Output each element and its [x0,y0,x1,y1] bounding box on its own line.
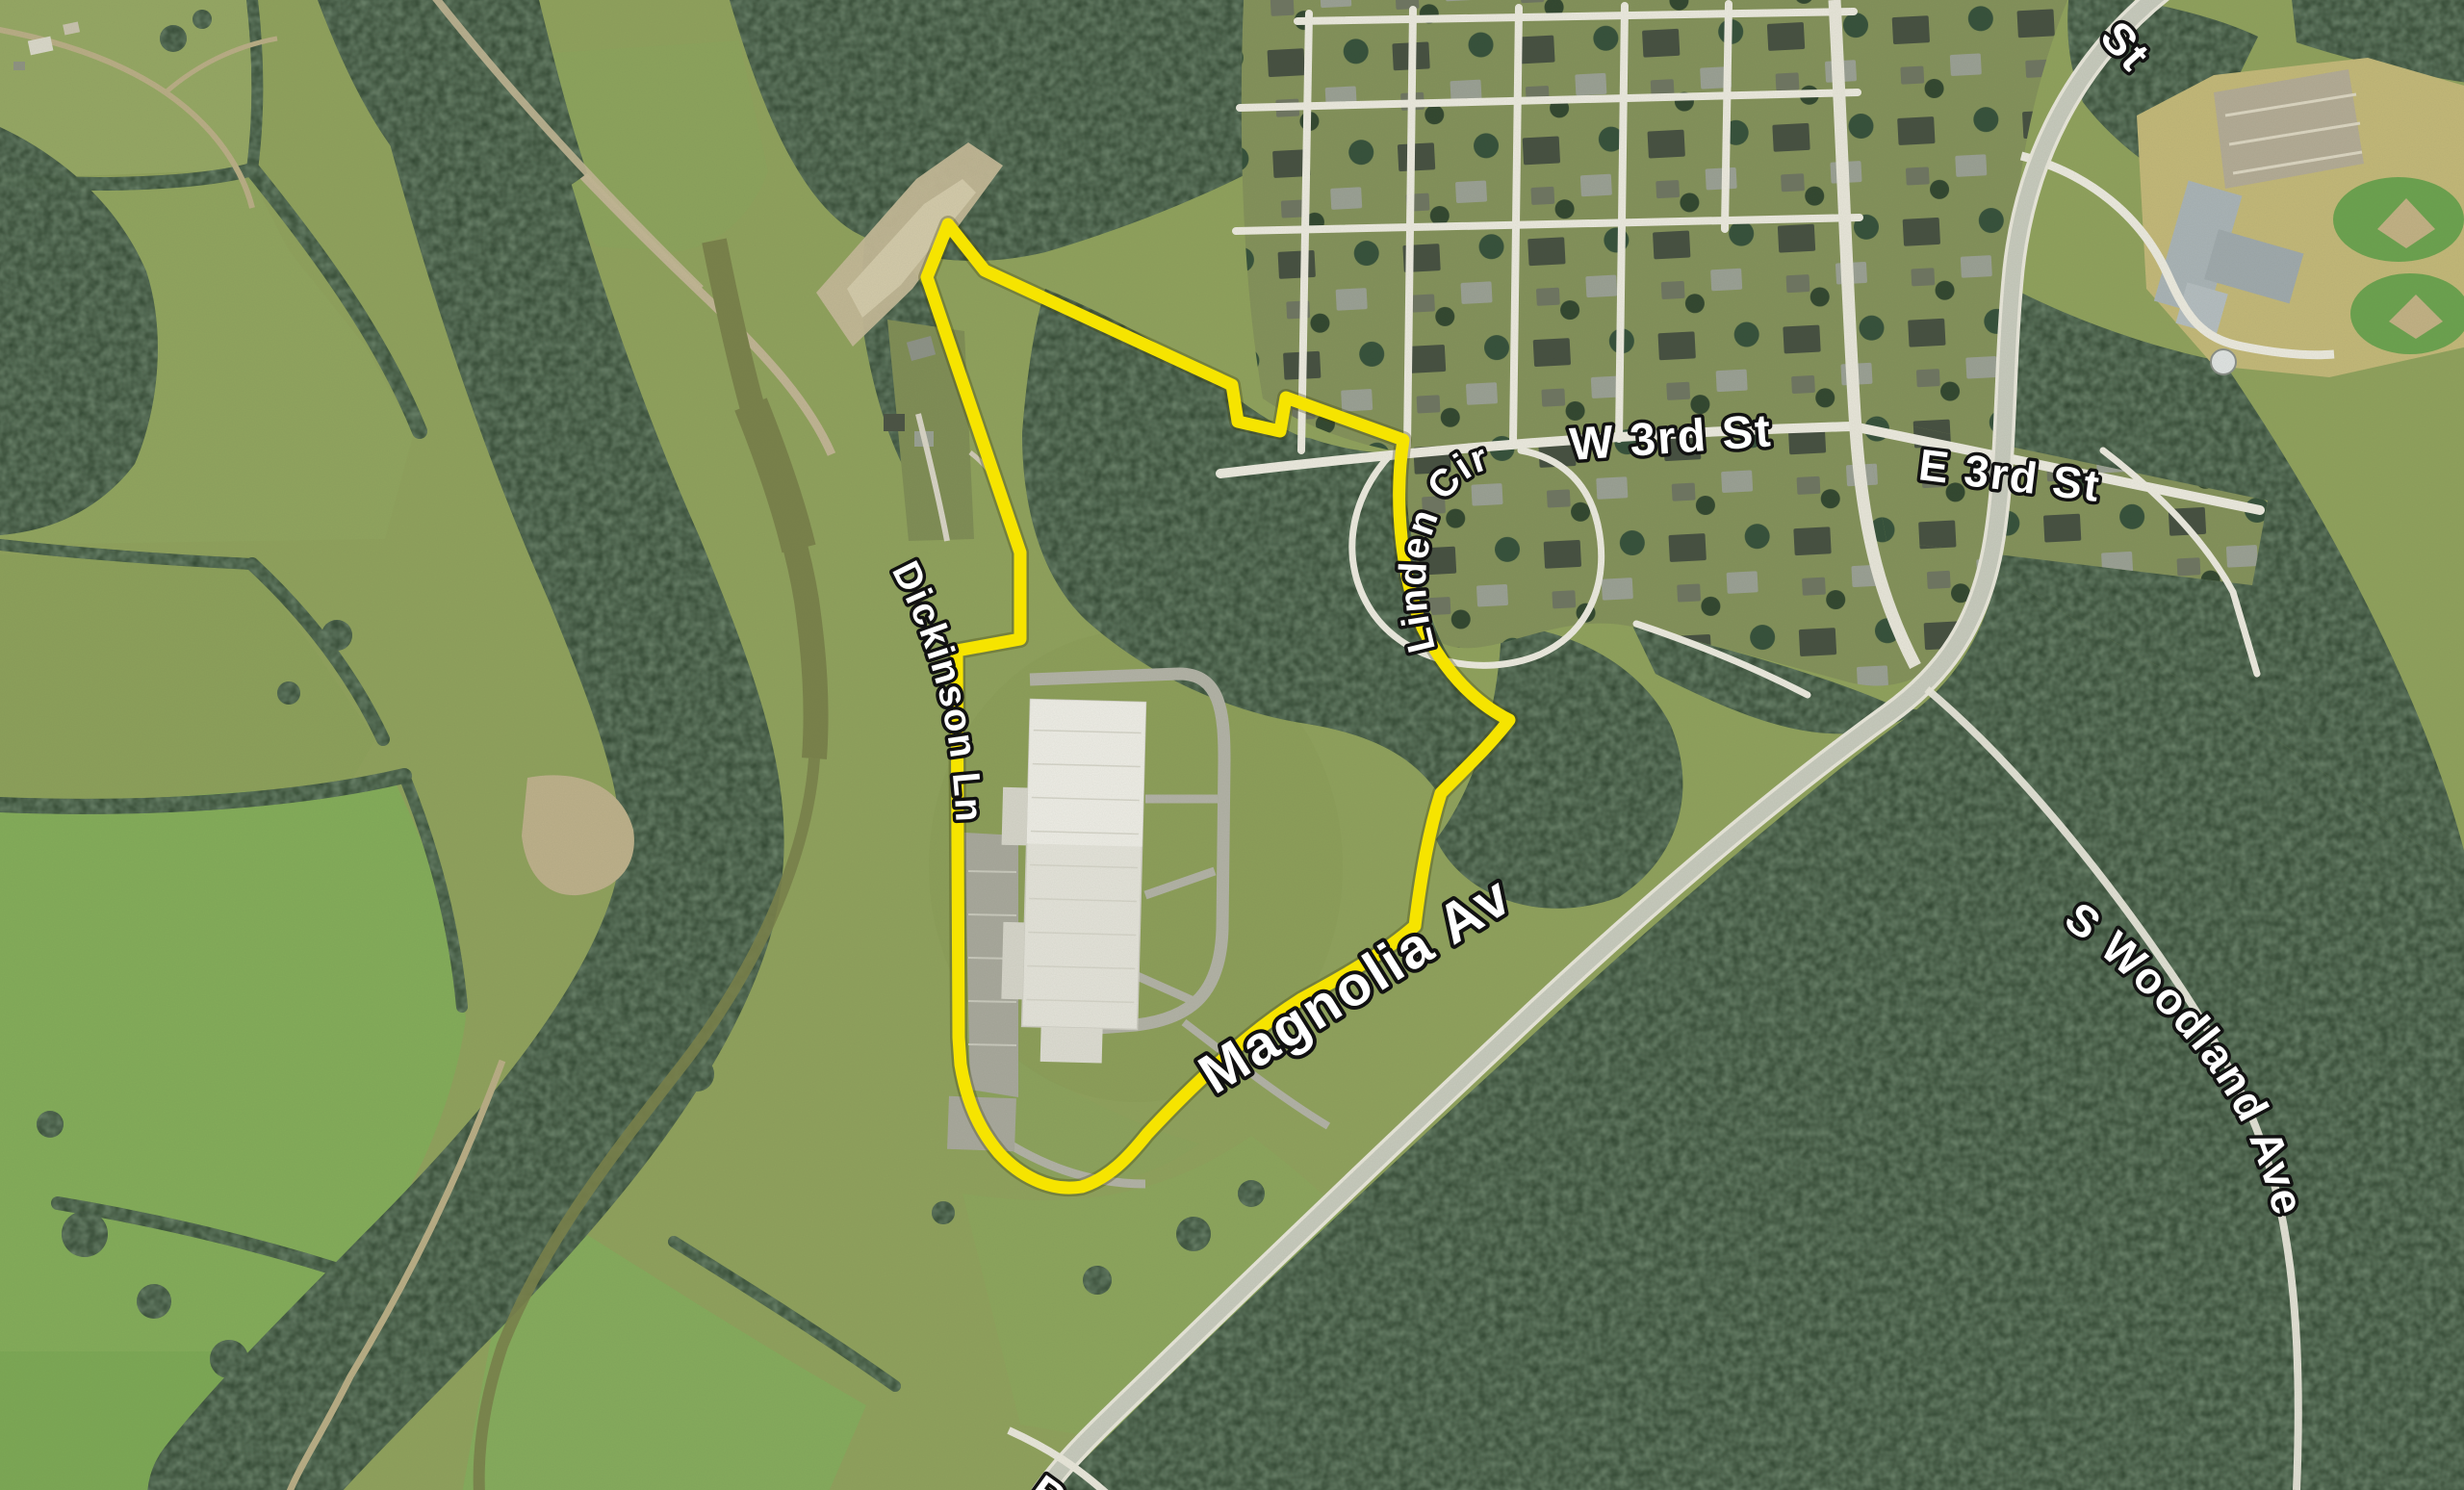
aerial-map-canvas[interactable]: W 3rd St E 3rd St Linden Cir Dickinson L… [0,0,2464,1490]
photo-grain-overlay [0,0,2464,1490]
